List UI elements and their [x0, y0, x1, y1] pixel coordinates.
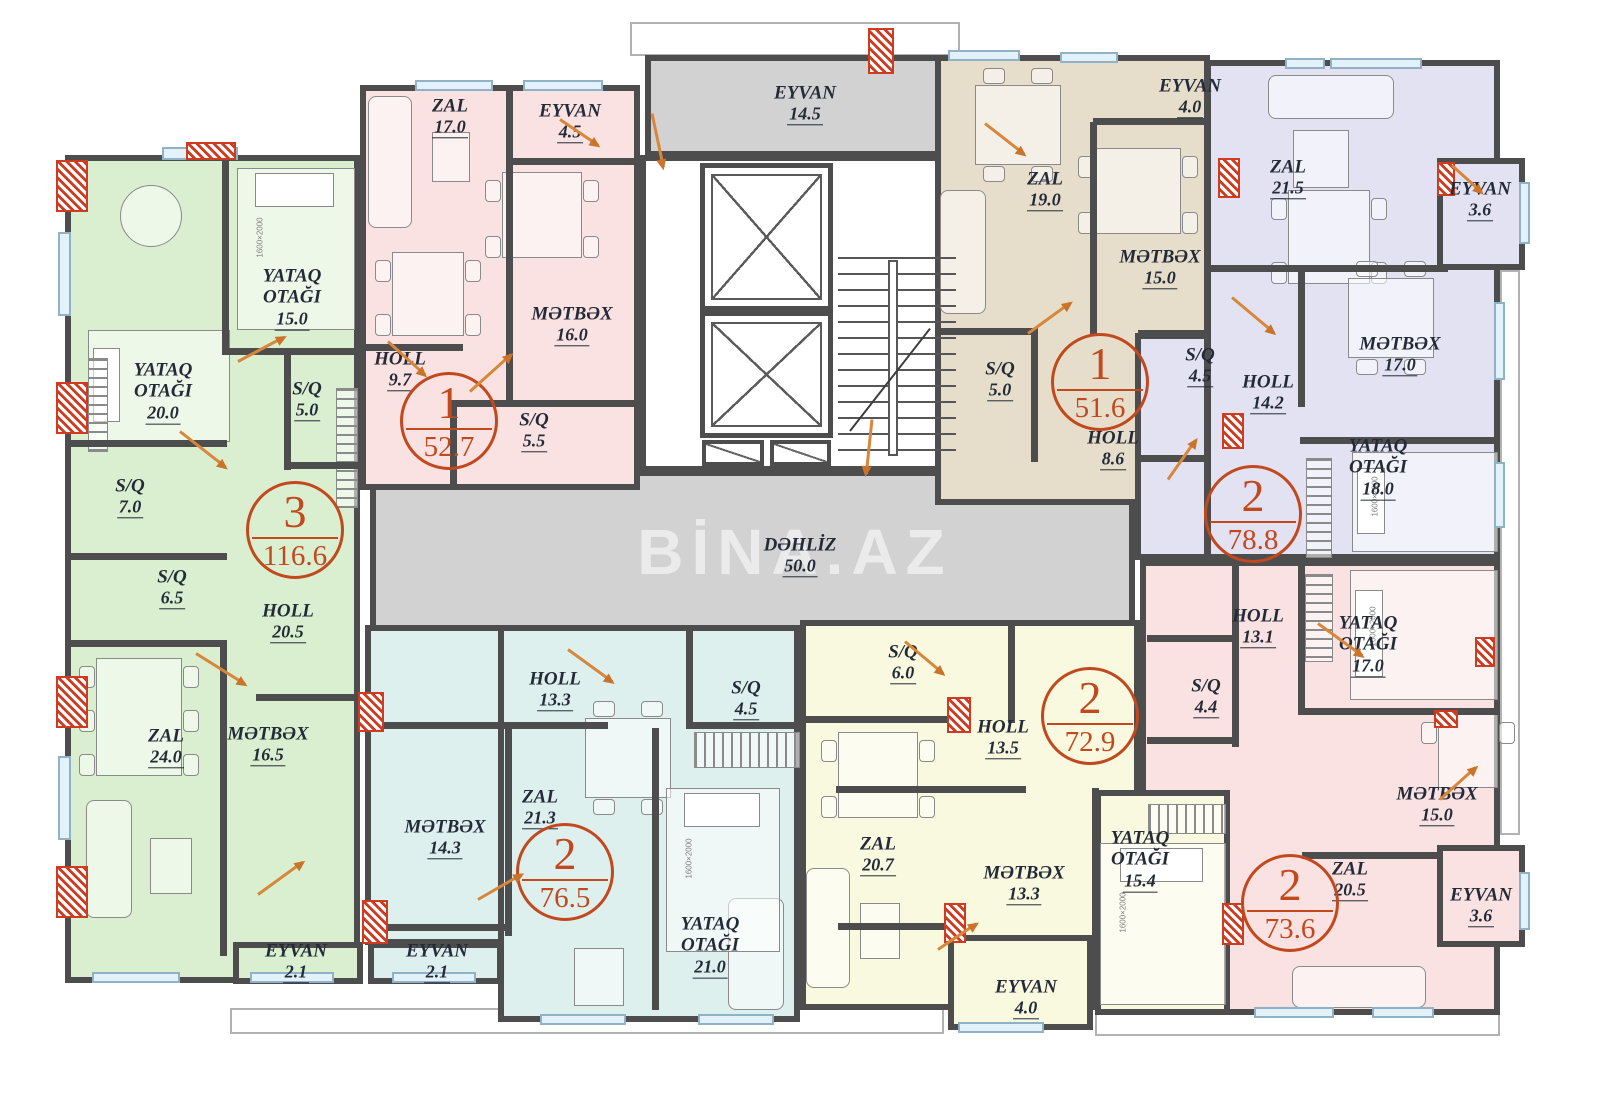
- room-name: MƏTBƏX: [983, 862, 1064, 883]
- window: [1060, 52, 1118, 63]
- column-marker: [947, 697, 971, 733]
- chair: [485, 180, 501, 202]
- badge-divider: [1047, 723, 1133, 725]
- room-name: EYVAN: [995, 976, 1057, 997]
- room-area: 16.5: [250, 745, 286, 767]
- room-name: S/Q: [985, 358, 1015, 379]
- room-label: HOLL20.5: [262, 600, 314, 643]
- partition-wall: [1093, 118, 1210, 125]
- bed-dimension-label: 1600×2000: [1119, 892, 1128, 932]
- window: [1372, 1007, 1434, 1018]
- room-area: 15.0: [1419, 805, 1455, 827]
- chair: [1271, 198, 1287, 220]
- chair: [1371, 198, 1387, 220]
- partition-wall: [1298, 560, 1305, 715]
- room-name: EYVAN: [539, 100, 601, 121]
- floor-plan: BİNA.AZ 1600×20001600×20001600×20001600×…: [0, 0, 1600, 1112]
- room-area: 13.3: [1006, 884, 1042, 906]
- tech-room-2: [770, 440, 831, 466]
- room-name: MƏTBƏX: [1396, 783, 1477, 804]
- room-name: ZAL: [1027, 168, 1063, 189]
- room-label: EYVAN2.1: [406, 940, 468, 983]
- chair: [79, 754, 95, 776]
- room-area: 15.0: [274, 308, 310, 330]
- window: [1494, 302, 1505, 380]
- room-area: 20.7: [860, 855, 896, 877]
- partition-wall: [222, 155, 229, 353]
- column-marker: [1434, 710, 1458, 728]
- room-area: 14.2: [1250, 393, 1286, 415]
- window: [58, 756, 71, 840]
- room-label: HOLL13.3: [529, 668, 581, 711]
- partition-wall: [65, 553, 227, 560]
- elevator-shaft-2: [700, 311, 833, 438]
- room-name: MƏTBƏX: [1359, 333, 1440, 354]
- chair: [375, 314, 391, 336]
- badge-total-area: 116.6: [263, 542, 327, 571]
- badge-total-area: 78.8: [1228, 526, 1279, 555]
- room-name: ZAL: [1332, 858, 1368, 879]
- partition-wall: [1147, 635, 1239, 642]
- room-name: MƏTBƏX: [227, 723, 308, 744]
- room-label: MƏTBƏX14.3: [404, 816, 485, 859]
- chair: [641, 701, 663, 717]
- window: [1254, 1007, 1334, 1018]
- room-area: 8.6: [1100, 449, 1127, 471]
- room-area: 20.0: [145, 402, 181, 424]
- room-name: YATAQ OTAĞI: [1339, 613, 1398, 656]
- room-name: HOLL: [1242, 371, 1294, 392]
- balcony-rail-top: [630, 22, 960, 56]
- partition-wall: [65, 440, 227, 447]
- badge-room-count: 2: [1279, 862, 1302, 908]
- room-area: 24.0: [148, 747, 184, 769]
- room-area: 3.6: [1468, 906, 1495, 928]
- room-label: S/Q4.5: [1185, 344, 1215, 387]
- room-area: 14.5: [787, 104, 823, 126]
- partition-wall: [1302, 852, 1437, 859]
- room-label: MƏTBƏX16.5: [227, 723, 308, 766]
- room-label: S/Q7.0: [115, 475, 145, 518]
- partition-wall: [368, 722, 608, 729]
- room-area: 2.1: [283, 962, 310, 984]
- badge-divider: [1057, 389, 1143, 391]
- partition-wall: [1147, 737, 1239, 744]
- badge-divider: [1247, 910, 1333, 912]
- room-label: S/Q4.4: [1191, 675, 1221, 718]
- partition-wall: [1008, 620, 1015, 723]
- room-area: 6.5: [159, 588, 186, 610]
- column-marker: [358, 692, 384, 732]
- partition-wall: [220, 640, 227, 956]
- badge-divider: [406, 428, 492, 430]
- furniture-wrd-v: [88, 358, 108, 452]
- room-label: HOLL8.6: [1087, 427, 1139, 470]
- window: [958, 1022, 1044, 1033]
- column-marker: [1222, 413, 1244, 449]
- chair: [1499, 722, 1515, 744]
- room-area: 7.0: [117, 497, 144, 519]
- window: [1330, 58, 1422, 69]
- window: [1285, 58, 1325, 69]
- room-label: YATAQ OTAĞI15.4: [1111, 828, 1170, 893]
- badge-divider: [1210, 521, 1296, 523]
- chair: [583, 180, 599, 202]
- room-area: 17.0: [1350, 655, 1386, 677]
- room-name: HOLL: [977, 716, 1029, 737]
- partition-wall: [1135, 455, 1210, 462]
- elevator-shaft-1: [700, 163, 833, 311]
- room-label: ZAL21.3: [522, 786, 558, 829]
- window: [523, 80, 603, 91]
- partition-wall: [1232, 560, 1239, 747]
- window: [540, 1014, 626, 1025]
- room-name: S/Q: [157, 566, 187, 587]
- room-area: 4.4: [1193, 697, 1220, 719]
- apartment-badge-pink-br-2-73: 273.6: [1241, 854, 1339, 952]
- room-area: 4.0: [1013, 998, 1040, 1020]
- column-marker: [56, 160, 88, 212]
- furniture-table: [838, 732, 918, 818]
- room-label: MƏTBƏX13.3: [983, 862, 1064, 905]
- room-name: YATAQ OTAĞI: [134, 360, 193, 403]
- room-area: 17.0: [432, 117, 468, 139]
- room-label: HOLL13.1: [1232, 605, 1284, 648]
- room-name: MƏTBƏX: [531, 303, 612, 324]
- chair: [919, 796, 935, 818]
- chair: [821, 796, 837, 818]
- chair: [1182, 156, 1198, 178]
- room-name: ZAL: [860, 833, 896, 854]
- room-label: HOLL13.5: [977, 716, 1029, 759]
- partition-wall: [1205, 265, 1448, 272]
- room-label: S/Q5.0: [985, 358, 1015, 401]
- chair: [465, 314, 481, 336]
- room-area: 15.4: [1122, 870, 1158, 892]
- badge-room-count: 3: [284, 489, 307, 535]
- room-area: 13.3: [537, 690, 573, 712]
- partition-wall: [1138, 330, 1210, 337]
- partition-wall: [1031, 328, 1038, 462]
- column-marker: [868, 28, 894, 74]
- room-label: ZAL21.5: [1270, 156, 1306, 199]
- room-label: YATAQ OTAĞI21.0: [681, 914, 740, 979]
- partition-wall: [506, 158, 640, 165]
- column-marker: [362, 900, 388, 944]
- chair: [593, 701, 615, 717]
- room-name: S/Q: [1191, 675, 1221, 696]
- bed-dimension-label: 1600×2000: [685, 838, 694, 878]
- furniture-round: [120, 185, 182, 247]
- room-label: YATAQ OTAĞI20.0: [134, 360, 193, 425]
- room-name: ZAL: [148, 725, 184, 746]
- room-name: YATAQ OTAĞI: [1349, 436, 1408, 479]
- furniture-wrd-v: [1306, 458, 1332, 558]
- furniture-sofa-v: [86, 800, 132, 918]
- room-name: ZAL: [1270, 156, 1306, 177]
- room-label: S/Q5.0: [292, 378, 322, 421]
- room-label: S/Q6.5: [157, 566, 187, 609]
- room-area: 21.5: [1270, 178, 1306, 200]
- partition-wall: [505, 728, 512, 936]
- room-area: 6.0: [890, 663, 917, 685]
- room-label: MƏTBƏX15.0: [1119, 246, 1200, 289]
- window: [58, 232, 71, 316]
- window: [948, 50, 1020, 61]
- room-name: MƏTBƏX: [1119, 246, 1200, 267]
- common-area-label: EYVAN14.5: [774, 82, 836, 125]
- room-name: HOLL: [529, 668, 581, 689]
- column-marker: [1475, 637, 1495, 667]
- partition-wall: [1302, 708, 1500, 715]
- apartment-badge-tan-1-51: 151.6: [1051, 333, 1149, 431]
- chair: [183, 710, 199, 732]
- room-area: 13.5: [985, 738, 1021, 760]
- chair: [1182, 212, 1198, 234]
- chair: [465, 260, 481, 282]
- staircase-rail: [888, 260, 898, 456]
- apartment-badge-cream-2-72: 272.9: [1041, 667, 1139, 765]
- room-name: EYVAN: [1450, 884, 1512, 905]
- room-area: 4.0: [1177, 97, 1204, 119]
- chair: [183, 666, 199, 688]
- room-name: ZAL: [522, 786, 558, 807]
- room-label: EYVAN4.5: [539, 100, 601, 143]
- room-area: 2.1: [424, 962, 451, 984]
- furniture-wrd-v: [336, 388, 358, 508]
- furniture-table: [392, 252, 464, 336]
- room-label: ZAL24.0: [148, 725, 184, 768]
- bed-pillow: [255, 173, 334, 207]
- apartment-badge-purple-2-78: 278.8: [1204, 465, 1302, 563]
- room-label: ZAL19.0: [1027, 168, 1063, 211]
- window: [1494, 462, 1505, 528]
- chair: [919, 740, 935, 762]
- room-area: 5.5: [521, 431, 548, 453]
- room-name: S/Q: [115, 475, 145, 496]
- room-area: 18.0: [1360, 478, 1396, 500]
- room-area: 19.0: [1027, 190, 1063, 212]
- badge-room-count: 2: [1242, 473, 1265, 519]
- column-marker: [56, 676, 88, 728]
- partition-wall: [1298, 270, 1305, 407]
- chair: [983, 166, 1005, 182]
- furniture-box: [860, 903, 900, 959]
- column-marker: [186, 142, 236, 160]
- chair: [583, 236, 599, 258]
- chair: [593, 799, 615, 815]
- room-name: EYVAN: [406, 940, 468, 961]
- apartment-teal-2-76: [365, 625, 508, 945]
- tech-room-1: [702, 440, 764, 466]
- room-area: 14.3: [427, 838, 463, 860]
- room-name: YATAQ OTAĞI: [263, 266, 322, 309]
- partition-wall: [284, 462, 360, 469]
- partition-wall: [838, 923, 950, 930]
- room-area: 50.0: [782, 556, 818, 578]
- furniture-box: [432, 132, 470, 182]
- chair: [375, 260, 391, 282]
- room-name: MƏTBƏX: [404, 816, 485, 837]
- apartment-badge-green-3-116: 3116.6: [246, 481, 344, 579]
- room-label: HOLL14.2: [1242, 371, 1294, 414]
- room-name: S/Q: [292, 378, 322, 399]
- partition-wall: [652, 728, 659, 1010]
- partition-wall: [368, 924, 508, 931]
- room-label: YATAQ OTAĞI18.0: [1349, 436, 1408, 501]
- room-area: 20.5: [270, 622, 306, 644]
- furniture-wrd-h: [694, 732, 800, 768]
- room-label: EYVAN3.6: [1450, 884, 1512, 927]
- badge-total-area: 72.9: [1065, 728, 1116, 757]
- room-label: S/Q5.5: [519, 409, 549, 452]
- apartment-badge-pink-top-1-52: 152.7: [400, 372, 498, 470]
- room-area: 3.6: [1467, 200, 1494, 222]
- partition-wall: [222, 348, 360, 355]
- column-marker: [56, 382, 88, 434]
- room-name: S/Q: [1185, 344, 1215, 365]
- partition-wall: [65, 640, 225, 647]
- partition-wall: [256, 694, 360, 701]
- badge-total-area: 52.7: [424, 433, 475, 462]
- room-name: HOLL: [262, 600, 314, 621]
- bed-dimension-label: 1600×2000: [256, 217, 265, 257]
- elevator-car-icon: [711, 174, 822, 300]
- room-area: 13.1: [1240, 627, 1276, 649]
- column-marker: [1218, 158, 1240, 198]
- room-name: ZAL: [432, 95, 468, 116]
- furniture-table: [1095, 148, 1181, 234]
- room-name: YATAQ OTAĞI: [1111, 828, 1170, 871]
- room-name: EYVAN: [774, 82, 836, 103]
- badge-total-area: 73.6: [1265, 915, 1316, 944]
- partition-wall: [284, 348, 291, 470]
- furniture-table: [502, 172, 582, 258]
- furniture-box: [150, 838, 192, 894]
- room-label: YATAQ OTAĞI15.0: [263, 266, 322, 331]
- room-area: 16.0: [554, 325, 590, 347]
- chair: [183, 754, 199, 776]
- room-label: MƏTBƏX15.0: [1396, 783, 1477, 826]
- room-area: 21.0: [692, 956, 728, 978]
- badge-divider: [522, 879, 608, 881]
- room-label: S/Q4.5: [731, 677, 761, 720]
- chair: [821, 740, 837, 762]
- partition-wall: [686, 625, 693, 729]
- elevator-car-icon: [711, 322, 822, 427]
- column-marker: [56, 866, 88, 918]
- room-name: S/Q: [888, 641, 918, 662]
- window: [92, 972, 180, 983]
- room-area: 9.7: [387, 370, 414, 392]
- room-label: ZAL17.0: [432, 95, 468, 138]
- chair: [485, 236, 501, 258]
- room-label: EYVAN2.1: [265, 940, 327, 983]
- partition-wall: [836, 786, 1026, 793]
- furniture-sofa-h: [1292, 966, 1426, 1008]
- furniture-sofa-v: [368, 96, 412, 228]
- window: [1519, 182, 1530, 244]
- room-label: ZAL20.7: [860, 833, 896, 876]
- room-label: EYVAN4.0: [1159, 75, 1221, 118]
- room-name: YATAQ OTAĞI: [681, 914, 740, 957]
- room-area: 5.0: [987, 380, 1014, 402]
- chair: [1031, 68, 1053, 84]
- room-label: EYVAN4.0: [995, 976, 1057, 1019]
- partition-wall: [1092, 788, 1099, 1006]
- room-area: 15.0: [1142, 268, 1178, 290]
- room-area: 4.5: [733, 699, 760, 721]
- room-label: MƏTBƏX16.0: [531, 303, 612, 346]
- window: [1519, 872, 1530, 930]
- apartment-badge-teal-2-76: 276.5: [516, 823, 614, 921]
- room-name: EYVAN: [1159, 75, 1221, 96]
- room-area: 5.0: [294, 400, 321, 422]
- room-area: 4.5: [1187, 366, 1214, 388]
- badge-room-count: 2: [1079, 675, 1102, 721]
- common-area-label: DƏHLİZ50.0: [764, 534, 837, 577]
- room-name: S/Q: [731, 677, 761, 698]
- badge-room-count: 1: [438, 380, 461, 426]
- chair: [983, 68, 1005, 84]
- partition-wall: [686, 722, 803, 729]
- badge-total-area: 76.5: [540, 884, 591, 913]
- window: [415, 80, 493, 91]
- room-area: 17.0: [1382, 355, 1418, 377]
- room-name: S/Q: [519, 409, 549, 430]
- badge-total-area: 51.6: [1075, 394, 1126, 423]
- partition-wall: [803, 716, 958, 723]
- window: [698, 1014, 774, 1025]
- furniture-sofa-h: [1268, 75, 1394, 119]
- furniture-wrd-v: [1305, 574, 1333, 662]
- room-label: MƏTBƏX17.0: [1359, 333, 1440, 376]
- bed-pillow: [684, 793, 760, 827]
- partition-wall: [1090, 122, 1097, 334]
- room-name: HOLL: [1232, 605, 1284, 626]
- badge-room-count: 2: [554, 831, 577, 877]
- badge-room-count: 1: [1089, 341, 1112, 387]
- room-name: DƏHLİZ: [764, 534, 837, 555]
- furniture-box: [574, 948, 624, 1006]
- room-name: EYVAN: [265, 940, 327, 961]
- badge-divider: [252, 537, 338, 539]
